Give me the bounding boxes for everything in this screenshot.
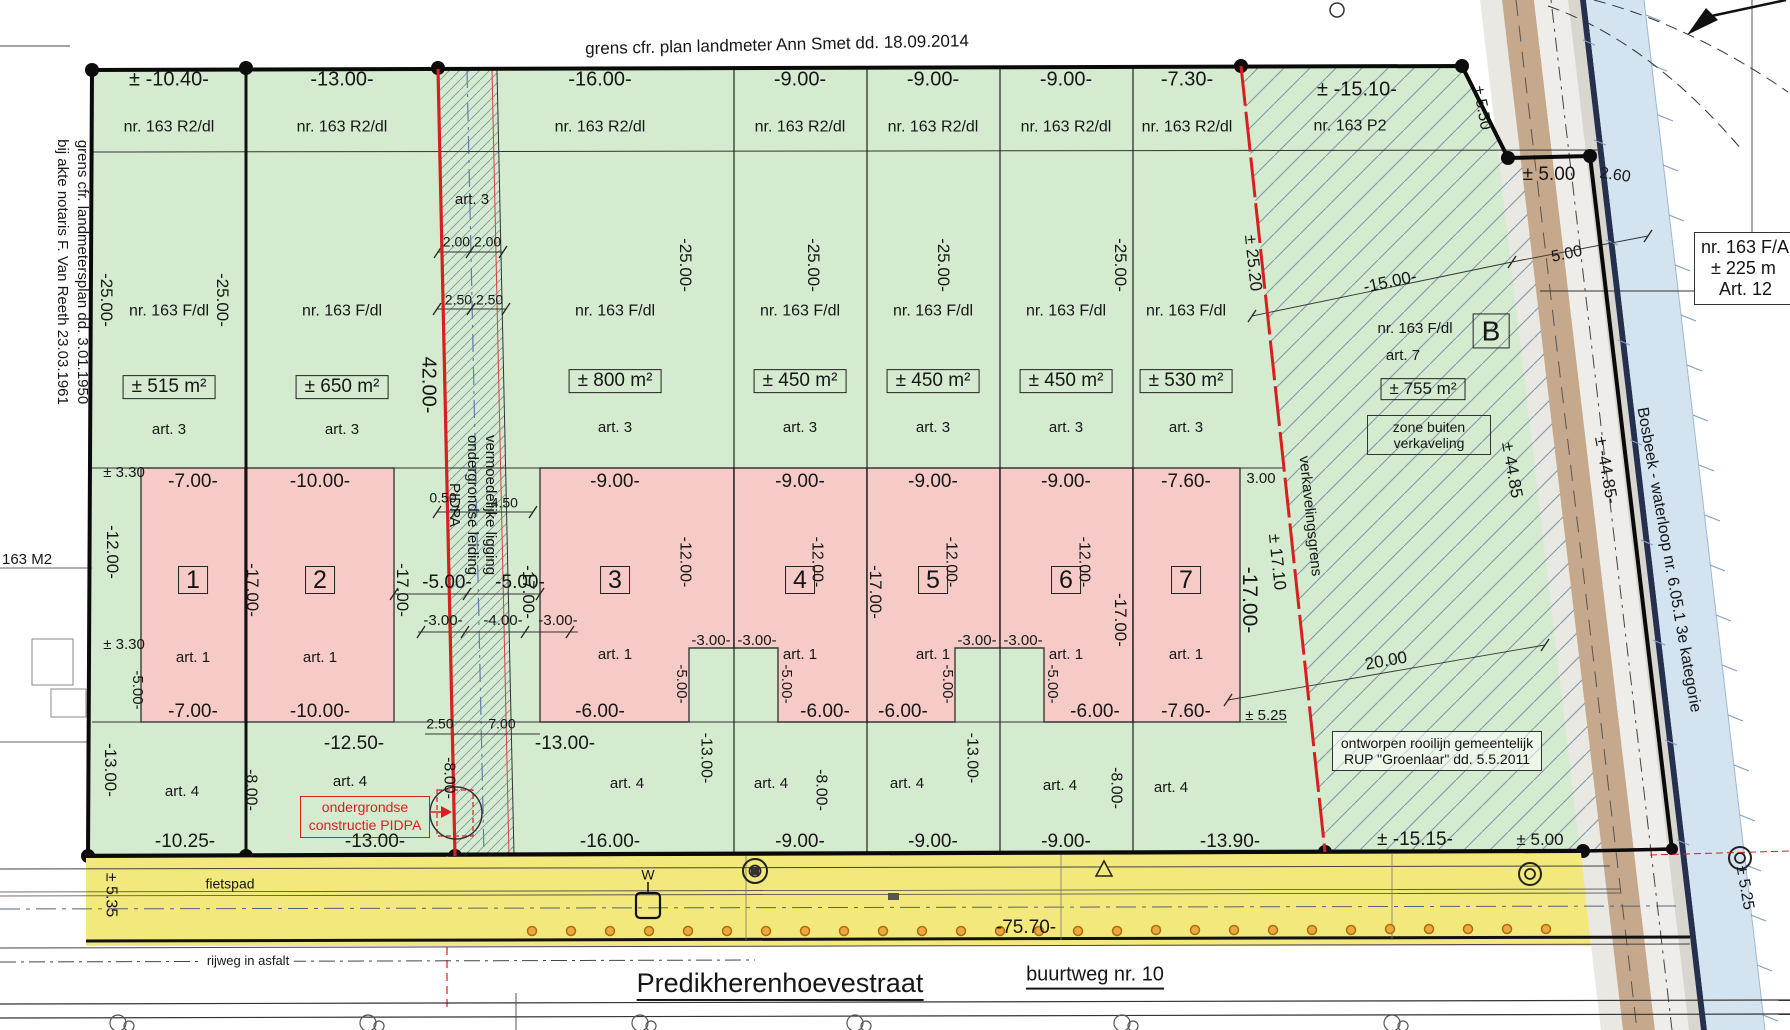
lot2-area-badge: ± 650 m² [296,375,389,399]
lot6-top-width: -9.00- [1040,70,1092,91]
corridor-bottom-dim: 7.00 [488,717,515,732]
depth-dim: -25.00- [213,273,231,327]
lot3-art-house: art. 1 [598,647,632,663]
lot1-number: 1 [178,566,208,594]
lot7-top-width: -7.30- [1161,70,1213,91]
lot7-house-top-dim: -7.60- [1161,472,1211,492]
lot4-parcel-nr: nr. 163 F/dl [760,304,840,321]
lot7-parcel-nr: nr. 163 F/dl [1146,304,1226,321]
lot4-area-badge: ± 450 m² [754,369,847,393]
buurtweg-label: buurtweg nr. 10 [1026,965,1164,990]
lot6-house-top-dim: -9.00- [1041,472,1091,492]
gap-dim: 3.00 [1246,471,1275,487]
lot4-art-top: art. 3 [783,420,817,436]
lot4-art-bottom: art. 4 [754,776,788,792]
strip-depth-dim: -8.00- [1107,767,1124,809]
lot7-building-zone [1133,468,1240,722]
lot2-parcel-nr-top: nr. 163 R2/dl [297,120,388,137]
lot3-art-top: art. 3 [598,420,632,436]
lot5-parcel-nr-top: nr. 163 R2/dl [888,120,979,137]
lot5-bottom-width: -9.00- [908,832,958,852]
lot7-art-house: art. 1 [1169,647,1203,663]
street-name: Predikherenhoevestraat [637,969,924,1001]
lot5-parcel-nr: nr. 163 F/dl [893,304,973,321]
rijweg-label: rijweg in asfalt [202,954,294,968]
rup-note: ontworpen rooilijn gemeentelijk RUP "Gro… [1332,731,1542,771]
strip-depth-dim: -13.00- [697,733,714,784]
lot3-parcel-nr-top: nr. 163 R2/dl [555,120,646,137]
edge-dim: ± 3.30 [103,637,145,653]
edge-dim: ± 5.00 [1523,165,1576,185]
neighbor-box-line2: ± 225 m [1697,258,1790,279]
gap-dim: -5.00- [422,573,472,593]
house-depth-dim: -17.00- [1111,593,1129,647]
notch-dim: -5.00- [939,664,955,703]
lot4-house-top-dim: -9.00- [775,472,825,492]
zoneb-note-line1: zone buiten [1368,419,1490,435]
lot6-bottom-width: -9.00- [1041,832,1091,852]
house-depth-dim: -17.00- [866,565,884,619]
lot4-bottom-width: -9.00- [775,832,825,852]
lot5-art-house: art. 1 [916,647,950,663]
lot5-top-width: -9.00- [907,70,959,91]
lot1-house-top-dim: -7.00- [168,472,218,492]
corridor-bottom-dim: -4.00- [483,613,522,629]
rup-note-line1: ontworpen rooilijn gemeentelijk [1337,735,1537,751]
corridor-dim: 2.50 2.50 [445,293,503,308]
house-depth-dim: -17.00- [1238,567,1260,634]
lot3-house-top-dim: -9.00- [590,472,640,492]
lot3-area-badge: ± 800 m² [569,369,662,393]
strip-depth-dim: -8.00- [242,769,259,811]
zoneb-letter: B [1473,313,1510,348]
lot4-top-width: -9.00- [774,70,826,91]
lot1-parcel-nr: nr. 163 F/dl [129,304,209,321]
lot5-house-bottom-dim: -6.00- [878,702,928,722]
lot3-parcel-nr: nr. 163 F/dl [575,304,655,321]
lot3-bottom-width: -16.00- [580,832,640,852]
lot6-house-bottom-dim: -6.00- [1070,702,1120,722]
lot6-parcel-nr-top: nr. 163 R2/dl [1021,120,1112,137]
notch-dim: -5.00- [778,664,794,703]
lot3-art-bottom: art. 4 [610,776,644,792]
zoneb-top-width: ± -15.10- [1317,80,1397,101]
house-depth-dim: -17.00- [519,565,537,619]
lot5-area-badge: ± 450 m² [887,369,980,393]
lot2-number: 2 [305,566,335,594]
street-total-dim: -75.70- [996,918,1056,938]
neighbor-box-line1: nr. 163 F/A [1697,237,1790,258]
zoneb-note-line2: verkaveling [1368,435,1490,451]
boundary-note-left-2: bij akte notaris F. Van Reeth 23.03.1961 [54,139,70,405]
corridor-bottom-dim: 2.50 [426,717,453,732]
strip-depth-dim: -8.00- [812,769,829,811]
neighbor-parcel-box: nr. 163 F/A ± 225 m Art. 12 [1694,232,1790,305]
boundary-note-left-1: grens cfr. landmetersplan dd. 3.01.1950 [74,140,90,404]
cell-width-dim: -13.00- [535,734,595,754]
survey-plan: grens cfr. plan landmeter Ann Smet dd. 1… [0,0,1790,1030]
notch-dim: -5.00- [673,664,689,703]
neighbor-parcel-label: 163 M2 [2,552,52,568]
house-depth-dim: -12.00- [676,537,693,588]
cell-width-dim: -12.50- [324,734,384,754]
zoneb-bottom-width: ± -15.15- [1377,830,1453,850]
lot6-art-house: art. 1 [1049,647,1083,663]
lot3-house-bottom-dim: -6.00- [575,702,625,722]
plan-drawing [0,0,1790,1030]
lot1-parcel-nr-top: nr. 163 R2/dl [124,120,215,137]
corridor-offset-dim: -4.50 [486,496,518,511]
lot7-bottom-width: -13.90- [1200,832,1260,852]
house-depth-dim: -17.00- [243,563,261,617]
strip-depth-dim: -8.00- [440,757,457,799]
lot1-art-bottom: art. 4 [165,784,199,800]
zoneb-area-badge: ± 755 m² [1381,378,1466,400]
fietspad-label: fietspad [205,877,254,892]
lot6-area-badge: ± 450 m² [1020,369,1113,393]
street-width-dim: ± 5.35 [102,873,119,917]
notch-dim: -3.00- [957,633,996,649]
house-depth-dim: -17.00- [393,563,411,617]
corridor-dim: 2.00 2.00 [443,235,501,250]
lot3-number: 3 [600,566,630,594]
zoneb-parcel-nr-top: nr. 163 P2 [1314,119,1387,136]
corridor-bottom-dim: -3.00- [538,613,577,629]
lot1-area-badge: ± 515 m² [123,375,216,399]
lot2-top-width: -13.00- [310,70,373,91]
corridor-note-2: ondergrondse leiding [464,435,480,575]
lot2-bottom-width: -13.00- [345,832,405,852]
notch-dim: -3.00- [1003,633,1042,649]
depth-dim: -25.00- [1111,238,1129,292]
corridor-art: art. 3 [455,192,489,208]
lot1-building-zone [141,468,245,722]
house-depth-dim: -12.00- [1075,537,1092,588]
gap-dim: ± 5.25 [1245,708,1287,724]
pidpa-note-line1: ondergrondse [322,799,408,815]
lot2-house-top-dim: -10.00- [290,472,350,492]
neighbor-box-line3: Art. 12 [1697,279,1790,300]
edge-dim: -13.00- [101,743,119,797]
depth-dim: -25.00- [804,238,822,292]
lot1-top-width: ± -10.40- [129,70,209,91]
lot7-area-badge: ± 530 m² [1140,369,1233,393]
house-depth-dim: -12.00- [808,537,825,588]
water-symbol: W [641,868,654,883]
rup-note-line2: RUP "Groenlaar" dd. 5.5.2011 [1337,751,1537,767]
notch-dim: -3.00- [737,633,776,649]
depth-dim: -25.00- [934,238,952,292]
lot2-building-zone [246,468,394,722]
zoneb-art: art. 7 [1386,348,1420,364]
lot7-art-bottom: art. 4 [1154,780,1188,796]
notch-dim: -3.00- [691,633,730,649]
north-arrow-icon [1687,8,1718,35]
edge-dim: -5.00- [129,670,145,709]
corridor-offset-dim: 0.50 [429,491,456,506]
lot5-art-bottom: art. 4 [890,776,924,792]
edge-dim: -12.00- [103,525,121,579]
lot1-art-house: art. 1 [176,650,210,666]
zoneb-parcel-nr: nr. 163 F/dl [1377,321,1452,337]
lot1-art-top: art. 3 [152,422,186,438]
zoneb-note: zone buiten verkaveling [1367,415,1491,455]
edge-dim: ± 3.30 [103,465,145,481]
notch-dim: -5.00- [1044,664,1060,703]
house-depth-dim: -12.00- [942,537,959,588]
lot5-house-top-dim: -9.00- [908,472,958,492]
lot2-art-bottom: art. 4 [333,774,367,790]
lot2-art-top: art. 3 [325,422,359,438]
lot7-art-top: art. 3 [1169,420,1203,436]
lot7-number: 7 [1171,566,1201,594]
lot2-art-house: art. 1 [303,650,337,666]
depth-dim: -25.00- [97,273,115,327]
corridor-bottom-dim: -3.00- [423,613,462,629]
lot1-house-bottom-dim: -7.00- [168,702,218,722]
lot1-bottom-width: -10.25- [155,832,215,852]
lot7-parcel-nr-top: nr. 163 R2/dl [1142,120,1233,137]
road-width-dim: ± 5.00 [1516,831,1563,849]
corridor-depth-dim: 42.00- [418,357,439,414]
strip-depth-dim: -13.00- [963,733,980,784]
lot4-house-bottom-dim: -6.00- [800,702,850,722]
lot2-parcel-nr: nr. 163 F/dl [302,304,382,321]
lot6-art-top: art. 3 [1049,420,1083,436]
lot5-art-top: art. 3 [916,420,950,436]
lot4-art-house: art. 1 [783,647,817,663]
lot6-art-bottom: art. 4 [1043,778,1077,794]
depth-dim: -25.00- [676,238,694,292]
lot3-top-width: -16.00- [568,70,631,91]
lot4-parcel-nr-top: nr. 163 R2/dl [755,120,846,137]
lot6-parcel-nr: nr. 163 F/dl [1026,304,1106,321]
lot7-house-bottom-dim: -7.60- [1161,702,1211,722]
lot2-house-bottom-dim: -10.00- [290,702,350,722]
